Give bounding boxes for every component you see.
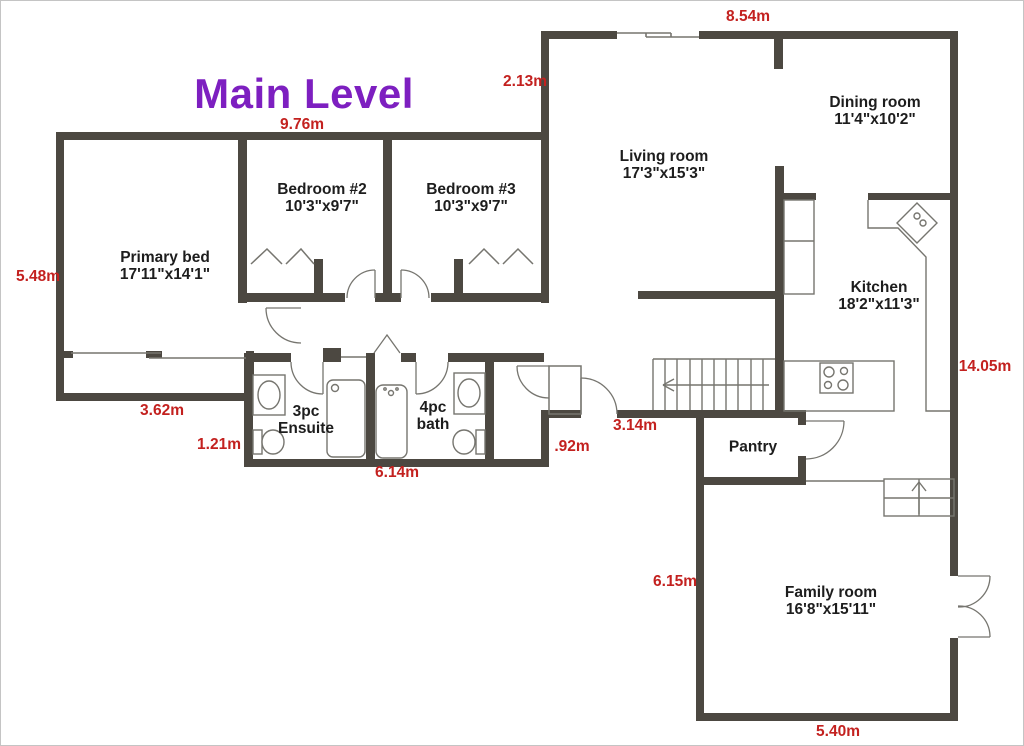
entry-steps — [884, 479, 954, 516]
bedroom2-door — [347, 270, 375, 298]
room-label-pantry: Pantry — [729, 439, 777, 456]
french-doors — [958, 576, 990, 637]
hall-closet — [549, 366, 581, 414]
floor-plan: Main Level 8.54m 2.13m 9.76m 5.48m 3.62m… — [0, 0, 1024, 746]
measurement-family-left: 6.15m — [653, 573, 697, 591]
measurement-living-left: 2.13m — [503, 73, 547, 91]
measurement-nook-width: .92m — [554, 438, 589, 456]
room-label-primary-bed: Primary bed 17'11"x14'1" — [120, 249, 210, 283]
living-room-window — [617, 33, 699, 37]
staircase — [653, 359, 775, 410]
measurement-ensuite-left: 1.21m — [197, 436, 241, 454]
bedroom3-door — [401, 270, 429, 298]
room-label-dining-room: Dining room 11'4"x10'2" — [829, 94, 920, 128]
measurement-bath-bottom: 6.14m — [375, 464, 419, 482]
measurement-wing-top: 9.76m — [280, 116, 324, 134]
kitchen-island — [784, 361, 894, 411]
room-label-living-room: Living room 17'3"x15'3" — [620, 148, 709, 182]
bath-sink-icon — [454, 373, 485, 414]
hall-closet-door — [517, 366, 549, 398]
page-title: Main Level — [194, 70, 414, 118]
measurement-hall-bottom: 3.14m — [613, 417, 657, 435]
bathtub-icon — [376, 385, 407, 458]
measurement-top-width: 8.54m — [726, 8, 770, 26]
stove-icon — [820, 363, 853, 393]
room-label-bath: 4pc bath — [417, 399, 450, 433]
bath-door — [416, 362, 448, 394]
corner-sink-icon — [897, 203, 937, 243]
bedroom2-closet-chevrons — [251, 249, 314, 264]
measurement-right-height: 14.05m — [959, 358, 1012, 376]
ensuite-door — [291, 362, 323, 394]
bedroom3-closet-chevrons — [469, 249, 533, 264]
stairs-direction-arrow — [663, 379, 769, 391]
front-entry-door — [581, 378, 617, 414]
room-label-bedroom-2: Bedroom #2 10'3"x9'7" — [277, 181, 367, 215]
measurement-left-height: 5.48m — [16, 268, 60, 286]
measurement-family-bottom: 5.40m — [816, 723, 860, 741]
linen-bifold-door — [374, 335, 400, 353]
primary-suite-door — [266, 308, 301, 343]
room-label-family-room: Family room 16'8"x15'11" — [785, 584, 877, 618]
bath-toilet-icon — [453, 430, 485, 454]
measurement-bay-bottom: 3.62m — [140, 402, 184, 420]
pantry-door — [806, 421, 844, 459]
room-label-kitchen: Kitchen 18'2"x11'3" — [838, 279, 920, 313]
room-label-ensuite: 3pc Ensuite — [278, 403, 334, 437]
room-label-bedroom-3: Bedroom #3 10'3"x9'7" — [426, 181, 516, 215]
